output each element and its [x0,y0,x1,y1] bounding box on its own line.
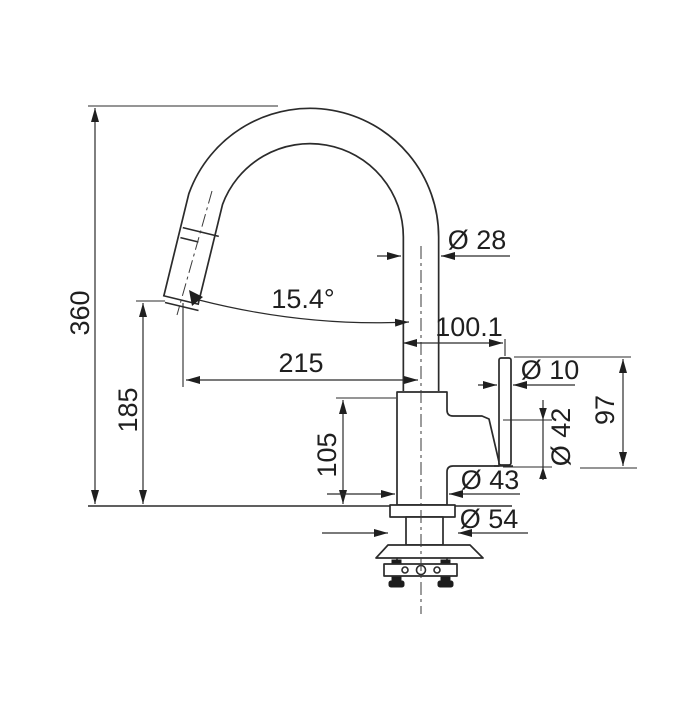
dim-body-height: 105 [312,398,396,504]
dim-lever-height-label: 97 [590,395,620,425]
dim-spout-angle-label: 15.4° [271,284,334,314]
dim-total-height-label: 360 [65,290,95,335]
dim-spout-reach: 215 [183,303,418,387]
dim-outlet-height: 185 [113,301,165,504]
faucet-technical-drawing-page: 360 185 215 15.4° Ø 28 [0,0,700,700]
dim-base-diameter-label: Ø 54 [460,504,519,534]
dim-cartridge-diameter-label: Ø 42 [546,408,576,467]
stud-foot-right [438,581,453,587]
dim-lever-diameter: Ø 10 [478,355,579,385]
dim-lever-diameter-label: Ø 10 [521,355,580,385]
dim-spout-diameter-label: Ø 28 [448,225,507,255]
dim-body-height-label: 105 [312,432,342,477]
dim-outlet-height-label: 185 [113,387,143,432]
dim-spout-reach-label: 215 [278,348,323,378]
faucet-technical-drawing: 360 185 215 15.4° Ø 28 [0,0,700,700]
stud-foot-left [389,581,404,587]
handle-lever [499,358,511,465]
base-shank [406,517,443,545]
dim-body-diameter-label: Ø 43 [461,465,520,495]
dim-spout-diameter: Ø 28 [377,225,510,256]
dim-spout-angle: 15.4° [189,284,409,323]
dimension-annotations: 360 185 215 15.4° Ø 28 [65,106,637,534]
base-flange [390,505,455,517]
mounting-plate [376,545,483,558]
dim-lever-offset-label: 100.1 [435,312,503,342]
